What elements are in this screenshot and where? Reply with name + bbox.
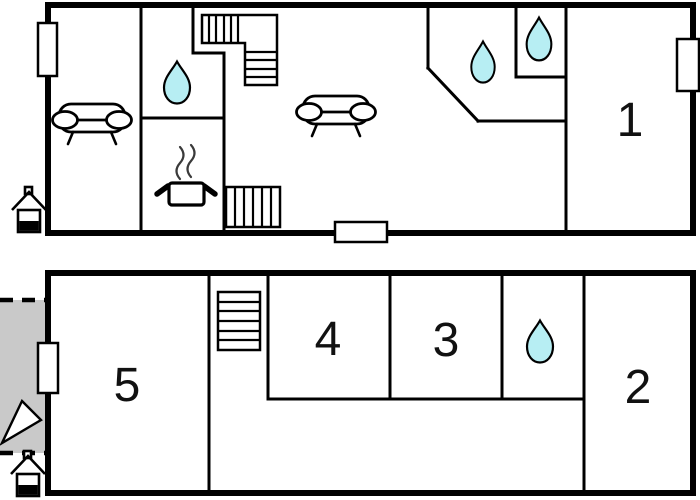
window-marker [677,39,699,91]
staircase-icon [226,187,280,227]
entrance-house-icon [12,187,46,232]
staircase-icon [218,292,260,350]
room-label-2: 2 [625,361,652,414]
entrance-house-icon [11,451,45,496]
room-label-3: 3 [433,314,460,367]
room-label-5: 5 [114,359,141,412]
room-label-4: 4 [315,313,342,366]
window-marker [38,23,57,76]
lower-floor-outer-wall [48,273,693,493]
room-label-1: 1 [617,94,644,147]
floor-plan: 1 [0,0,700,500]
upper-floor-plan: 1 [12,5,699,242]
door-marker [335,222,387,242]
window-marker [38,343,58,393]
floor-plan-canvas: 1 [0,0,700,500]
lower-floor-plan: 5 4 3 2 [2,273,693,496]
